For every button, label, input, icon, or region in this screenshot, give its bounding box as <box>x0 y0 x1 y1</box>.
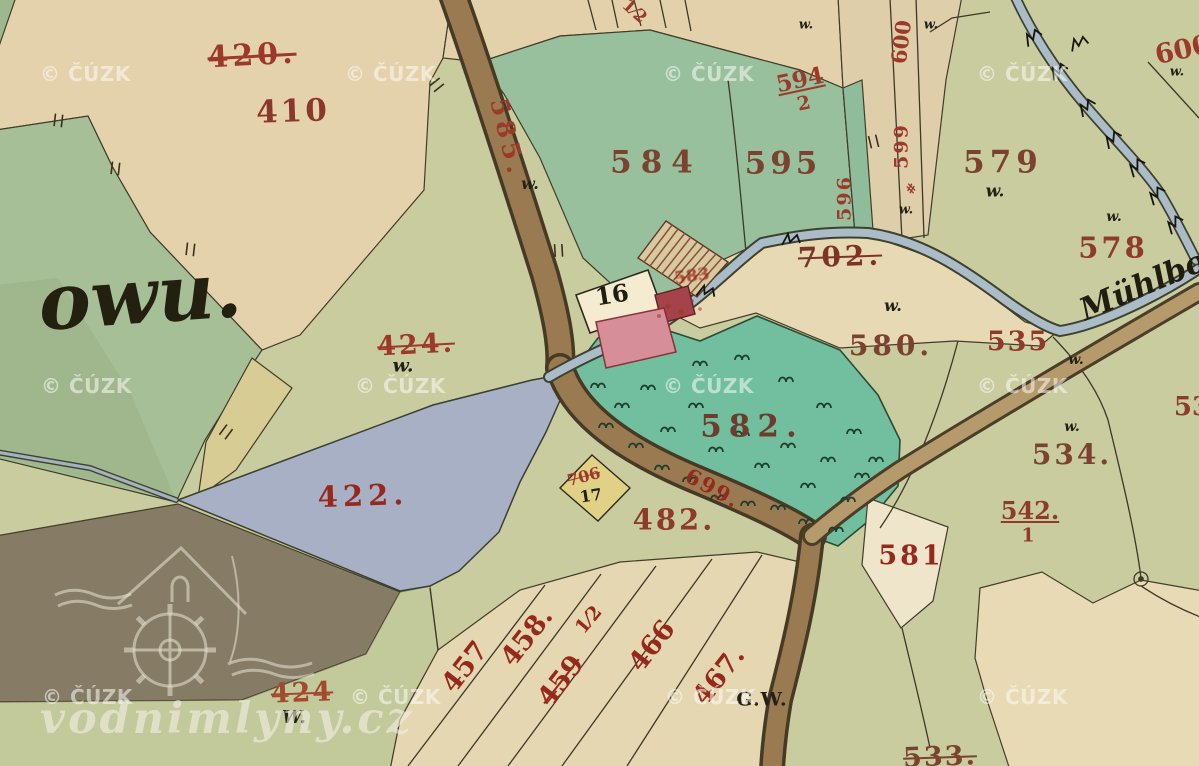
cadastral-map-viewport: 420.410owu.585.w.58459559421⁄2596599#w.6… <box>0 0 1199 766</box>
map-canvas <box>0 0 1199 766</box>
